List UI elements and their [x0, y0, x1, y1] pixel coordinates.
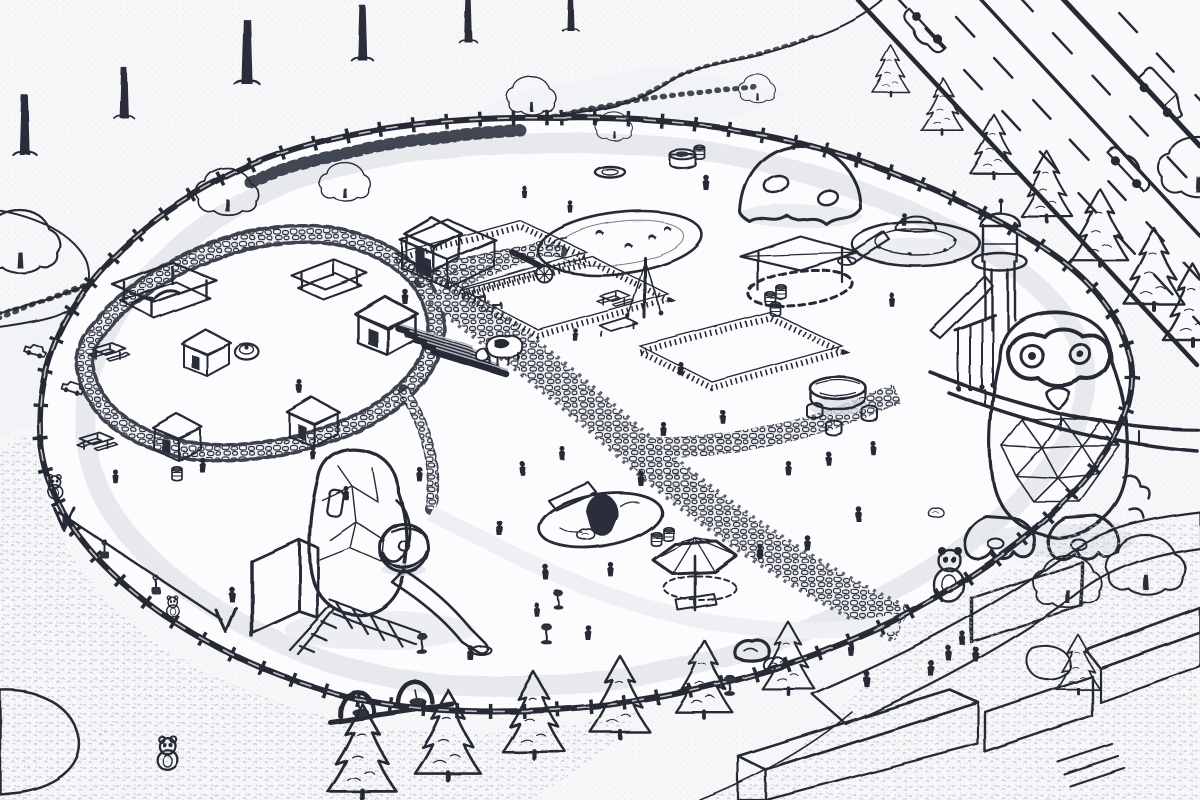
visitor: [946, 646, 953, 661]
visitor: [927, 660, 934, 676]
visitor: [786, 461, 792, 476]
visitor: [417, 467, 423, 482]
sketch-park-scene: [0, 0, 1200, 800]
visitor: [497, 521, 504, 536]
visitor: [113, 470, 119, 484]
visitor: [960, 631, 966, 646]
visitor: [297, 380, 303, 394]
visitor: [568, 201, 573, 213]
visitor: [585, 625, 592, 640]
visitor: [520, 462, 526, 476]
visitor: [467, 645, 474, 660]
visitor: [826, 452, 832, 466]
visitor: [862, 670, 869, 686]
roundabout-spinner: [235, 344, 259, 360]
visitor: [703, 175, 710, 190]
visitor: [229, 587, 236, 602]
visitor: [804, 535, 811, 550]
visitor: [559, 446, 565, 460]
visitor: [607, 561, 613, 576]
visitor: [678, 362, 684, 376]
visitor: [973, 647, 980, 662]
visitor: [310, 446, 316, 460]
visitor: [901, 213, 907, 226]
visitor: [199, 457, 206, 472]
visitor: [533, 602, 539, 616]
visitor: [888, 292, 894, 306]
visitor: [848, 641, 854, 656]
visitor: [573, 329, 579, 342]
visitor: [871, 442, 877, 456]
visitor: [856, 507, 863, 522]
visitor: [521, 185, 526, 197]
visitor: [543, 565, 550, 580]
visitor: [720, 410, 726, 424]
visitor: [343, 486, 349, 500]
visitor: [660, 421, 666, 436]
visitor: [402, 289, 409, 304]
park-illustration: [0, 0, 1200, 800]
visitor: [758, 545, 765, 560]
visitor: [638, 471, 645, 486]
